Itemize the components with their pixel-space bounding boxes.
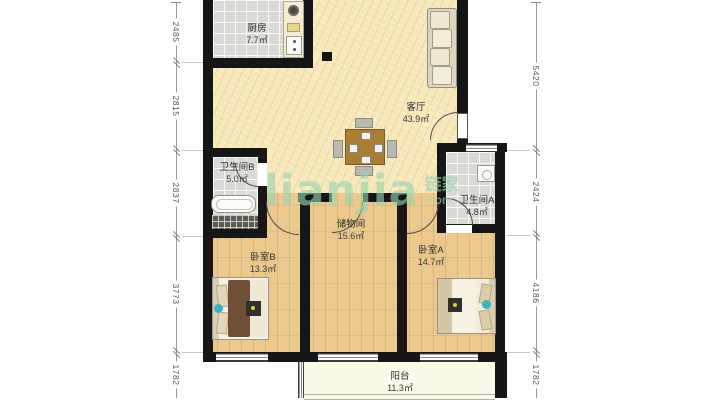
dim-left-2: 2837	[171, 180, 181, 207]
dim-left-4: 1782	[171, 362, 181, 389]
wall-bedroomb-storage	[300, 193, 310, 362]
floorplan-canvas: 厨房 7.7㎡ 客厅 43.9㎡ 卫生间B 5.0㎡ 卫生间A 4.8㎡ 储物间…	[0, 0, 710, 400]
wall-bathroom-b-bottom	[203, 229, 267, 238]
window-storage	[318, 353, 378, 362]
label-kitchen: 厨房 7.7㎡	[246, 23, 268, 47]
window-bedroom-b	[216, 353, 268, 362]
room-area: 7.7㎡	[246, 35, 268, 47]
room-name: 卫生间B	[220, 162, 255, 174]
bed-a-icon	[437, 278, 496, 334]
dim-left-3: 3773	[171, 281, 181, 308]
label-bedroom-a: 卧室A 14.7㎡	[418, 245, 445, 269]
wall-balcony-right	[495, 352, 507, 398]
wall-right-outer	[495, 143, 505, 355]
bed-b-icon	[212, 277, 269, 340]
label-living: 客厅 43.9㎡	[403, 102, 430, 126]
room-name: 厨房	[246, 23, 268, 35]
room-area: 13.3㎡	[250, 264, 277, 276]
label-balcony: 阳台 11.3㎡	[387, 371, 413, 395]
room-name: 阳台	[387, 371, 413, 383]
room-name: 卧室A	[418, 245, 445, 257]
dining-set-icon	[333, 118, 397, 176]
wall-bathroom-a-left	[437, 143, 446, 233]
dim-left-0: 2485	[171, 19, 181, 46]
shower-grid-icon	[212, 215, 258, 229]
window-balcony-left	[298, 362, 304, 398]
kitchen-item-icon	[287, 23, 300, 32]
wall-kitchen-door-stub	[322, 52, 332, 61]
room-name: 卧室B	[250, 252, 277, 264]
dim-right-0: 5420	[531, 63, 541, 90]
room-name: 储物间	[337, 219, 366, 231]
room-area: 14.7㎡	[418, 257, 445, 269]
bathtub-icon	[211, 195, 256, 213]
bathroom-a-door-gap	[446, 225, 472, 233]
label-bathroom-a: 卫生间A 4.8㎡	[460, 195, 495, 219]
kitchen-sink-icon	[288, 5, 299, 16]
dim-left-1: 2815	[171, 93, 181, 120]
window-bathroom-a	[466, 144, 497, 152]
sofa-icon	[427, 8, 457, 88]
room-area: 4.8㎡	[460, 207, 495, 219]
label-bedroom-b: 卧室B 13.3㎡	[250, 252, 277, 276]
room-area: 5.0㎡	[220, 174, 255, 186]
wall-storage-bedrooma	[397, 193, 407, 362]
window-bedroom-a	[420, 353, 478, 362]
dim-right-3: 1782	[531, 362, 541, 389]
wall-bathroom-b-right	[258, 148, 267, 238]
dim-right-1: 2424	[531, 179, 541, 206]
kitchen-stove-icon	[286, 36, 302, 55]
room-name: 客厅	[403, 102, 430, 114]
bathroom-a-sink-icon	[477, 165, 495, 182]
room-area: 15.6㎡	[337, 231, 366, 243]
dim-right-2: 4186	[531, 280, 541, 307]
outside-mask-top-right	[468, 0, 710, 143]
wall-living-right-upper	[457, 0, 468, 114]
room-area: 43.9㎡	[403, 114, 430, 126]
label-storage: 储物间 15.6㎡	[337, 219, 366, 243]
bathroom-b-door-gap	[258, 163, 267, 186]
kitchen-counter	[283, 1, 304, 58]
label-bathroom-b: 卫生间B 5.0㎡	[220, 162, 255, 186]
room-area: 11.3㎡	[387, 383, 413, 395]
entry-door-leaf	[457, 113, 468, 139]
wall-kitchen-bottom	[203, 58, 313, 68]
room-name: 卫生间A	[460, 195, 495, 207]
